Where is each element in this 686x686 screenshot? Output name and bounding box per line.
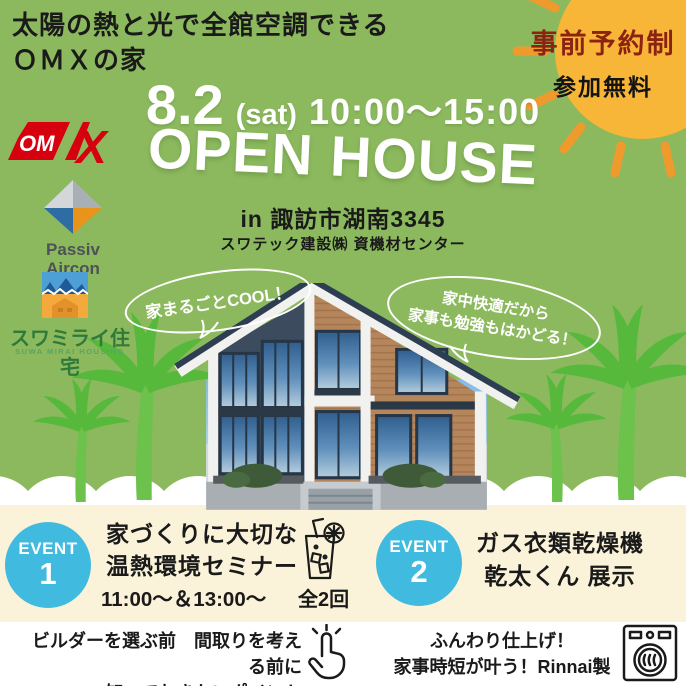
palm-trees-right bbox=[500, 368, 686, 518]
catchphrase: 太陽の熱と光で全館空調できる ＯＭＸの家 bbox=[12, 8, 389, 78]
event-1-badge: EVENT 1 bbox=[5, 522, 91, 608]
footer-left-line1: ビルダーを選ぶ前 間取りを考える前に bbox=[26, 628, 302, 680]
passiv-line1: Passiv bbox=[30, 240, 116, 259]
event-1-title-line1: 家づくりに大切な bbox=[106, 518, 298, 550]
event-2-badge-number: 2 bbox=[410, 556, 427, 588]
speech-bubble-left-text: 家まるごとCOOL！ bbox=[144, 279, 293, 323]
catchphrase-line1: 太陽の熱と光で全館空調できる bbox=[12, 8, 389, 43]
event-2-title-line1: ガス衣類乾燥機 bbox=[455, 527, 665, 560]
speech-bubble-right-tail bbox=[446, 344, 470, 366]
footer-left-text: ビルダーを選ぶ前 間取りを考える前に 知っておきたいポイント bbox=[26, 628, 302, 686]
event-1-time: 11:00〜＆13:00〜 bbox=[101, 582, 266, 612]
footer-left-line2: 知っておきたいポイント bbox=[26, 680, 302, 686]
event-1-session-count: 全2回 bbox=[298, 583, 349, 612]
reservation-required-label: 事前予約制 bbox=[520, 22, 686, 61]
drink-glass-icon bbox=[296, 516, 348, 582]
omx-logo-om: OM bbox=[19, 131, 55, 156]
open-house-flyer: 事前予約制 参加無料 太陽の熱と光で全館空調できる ＯＭＸの家 8.2 (sat… bbox=[0, 0, 686, 686]
event-1-badge-number: 1 bbox=[39, 558, 56, 590]
event-2-title-line2: 乾太くん 展示 bbox=[455, 560, 665, 593]
footer-right-text: ふんわり仕上げ！ 家事時短が叶う！Rinnai製 bbox=[388, 628, 616, 680]
event-1-title-line2: 温熱環境セミナー bbox=[106, 550, 298, 582]
speech-bubble-left-tail bbox=[198, 320, 222, 342]
suwa-mirai-logo-icon bbox=[42, 272, 88, 318]
tap-hand-icon bbox=[306, 624, 350, 684]
passiv-aircon-logo-icon bbox=[40, 178, 106, 236]
event-2-badge: EVENT 2 bbox=[376, 520, 462, 606]
event-2-title: ガス衣類乾燥機 乾太くん 展示 bbox=[455, 527, 665, 593]
omx-logo: OM X bbox=[6, 118, 136, 168]
suwa-mirai-logo-subtitle: SUWA MIRAI HOUSING bbox=[2, 347, 138, 356]
dryer-machine-icon bbox=[622, 624, 678, 682]
footer-right-line1: ふんわり仕上げ！ bbox=[388, 628, 616, 654]
event-1-title: 家づくりに大切な 温熱環境セミナー bbox=[106, 518, 298, 582]
omx-logo-x: X bbox=[73, 121, 109, 168]
footer-right-line2: 家事時短が叶う！Rinnai製 bbox=[388, 654, 616, 680]
